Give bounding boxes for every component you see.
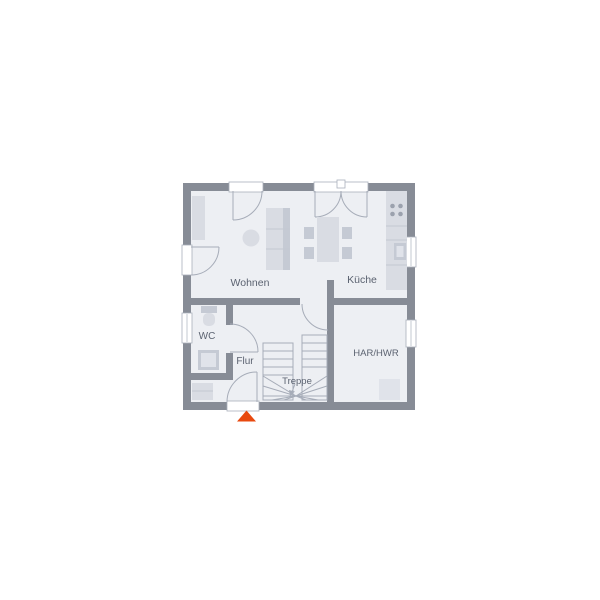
room-label-treppe: Treppe [282, 376, 312, 387]
wall-wc-bottom [191, 373, 233, 380]
chair [304, 247, 314, 259]
floor-area [191, 191, 407, 402]
double-door-center-post [337, 180, 345, 188]
entrance-marker-icon [237, 411, 256, 422]
sofa-seat [266, 208, 283, 270]
room-label-wc: WC [199, 331, 216, 342]
round-table [243, 230, 260, 247]
chair [342, 247, 352, 259]
kitchen-sink-basin [397, 246, 404, 257]
chair [342, 227, 352, 239]
dining-table [317, 217, 339, 262]
toilet-bowl [203, 313, 215, 326]
sideboard [192, 196, 205, 240]
sofa-back [283, 208, 290, 270]
wc-sink-basin [201, 353, 216, 367]
toilet-tank [201, 306, 217, 313]
room-label-wohnen: Wohnen [231, 277, 270, 289]
chair [304, 227, 314, 239]
room-label-kueche: Küche [347, 274, 377, 286]
wall-wohnen-flur [191, 298, 300, 305]
side-door-opening [182, 245, 192, 275]
terrace-door-opening [229, 182, 263, 192]
wall-har-left [327, 280, 334, 402]
wall-wc-right-upper [226, 305, 233, 325]
wall-kueche-har [334, 298, 407, 305]
appliance [379, 379, 400, 400]
floor-plan-page: Wohnen Küche WC Flur Treppe HAR/HWR [0, 0, 600, 600]
room-label-har-hwr: HAR/HWR [353, 348, 399, 359]
entrance-door-opening [227, 401, 259, 411]
floor-plan-drawing: Wohnen Küche WC Flur Treppe HAR/HWR [0, 0, 600, 600]
wall-wc-right-lower [226, 353, 233, 375]
room-label-flur: Flur [236, 356, 254, 367]
